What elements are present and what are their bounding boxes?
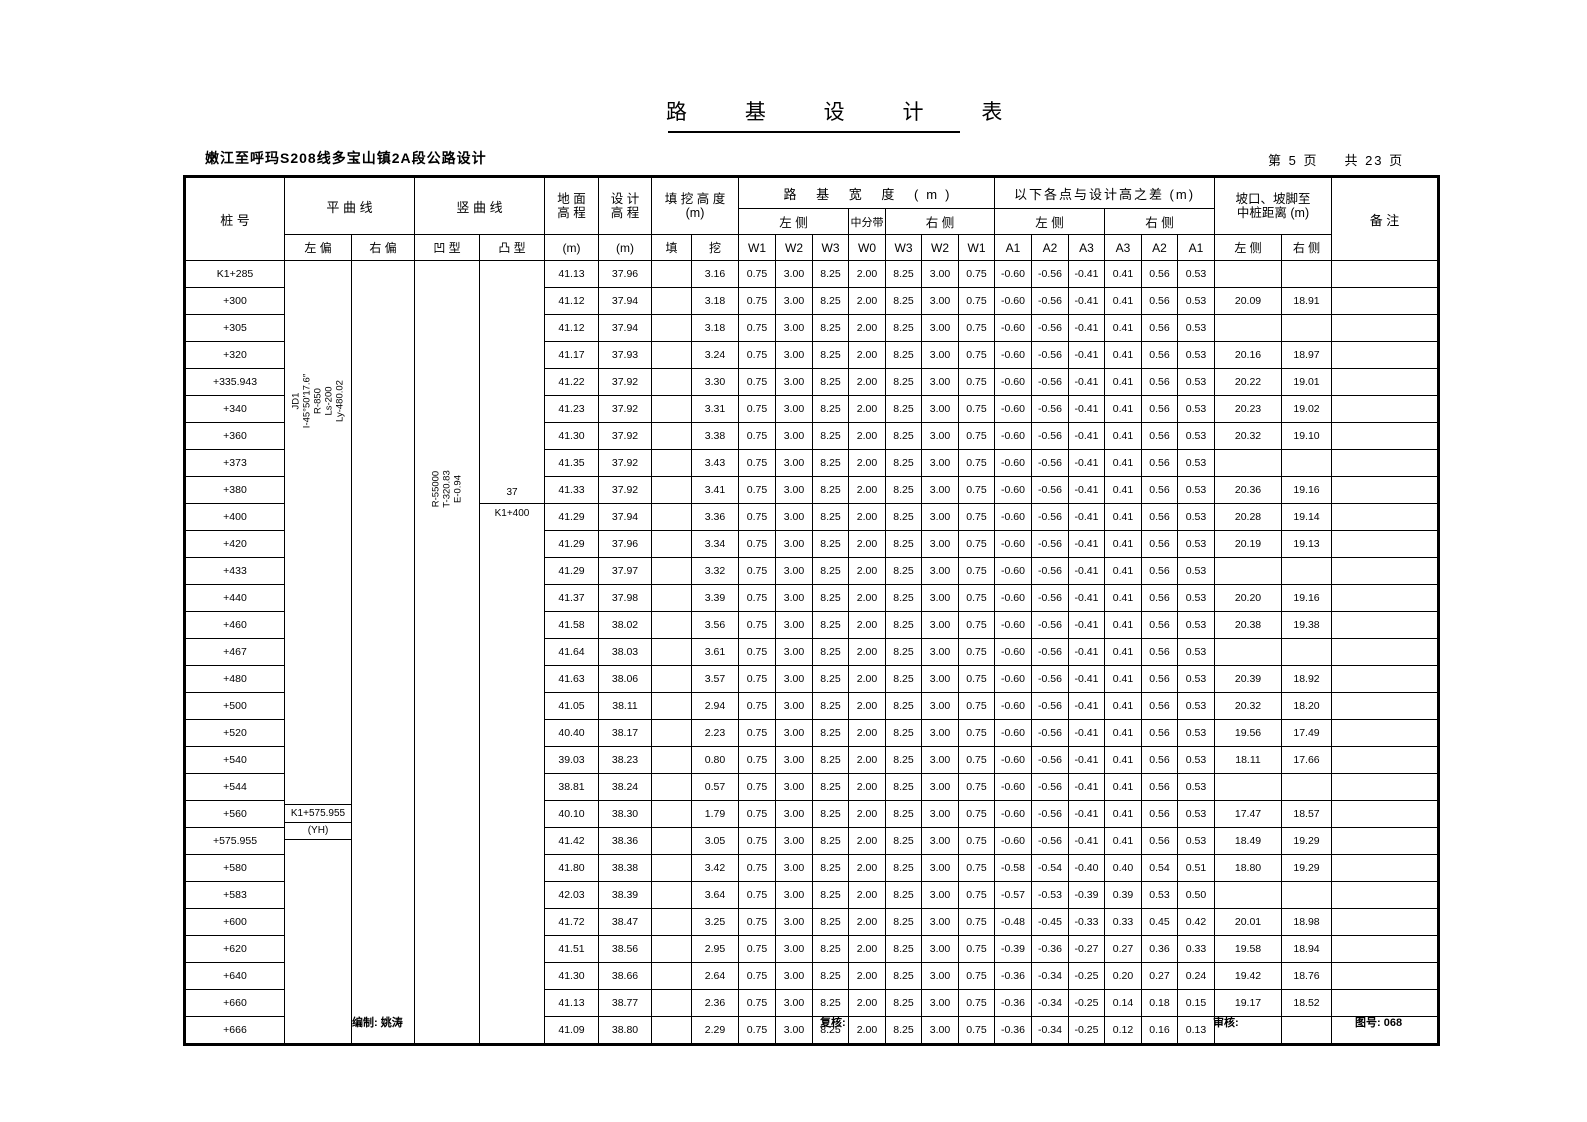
slope-right-cell: 18.94 xyxy=(1282,936,1332,963)
a2-right-cell: 0.56 xyxy=(1142,423,1178,450)
w1-left-cell: 0.75 xyxy=(739,801,776,828)
w1-left-cell: 0.75 xyxy=(739,963,776,990)
slope-left-cell: 20.22 xyxy=(1215,369,1282,396)
slope-left-cell: 20.09 xyxy=(1215,288,1282,315)
a1-left-cell: -0.60 xyxy=(995,774,1032,801)
remark-cell xyxy=(1332,639,1439,666)
a3-right-cell: 0.41 xyxy=(1105,342,1142,369)
a3-left-cell: -0.41 xyxy=(1069,693,1105,720)
w0-cell: 2.00 xyxy=(849,909,886,936)
a1-right-cell: 0.42 xyxy=(1178,909,1215,936)
ground-elevation-cell: 41.42 xyxy=(545,828,599,855)
cut-cell: 3.36 xyxy=(692,504,739,531)
w2-right: W2 xyxy=(922,235,959,261)
w1-right-cell: 0.75 xyxy=(959,990,995,1017)
w3-left-cell: 8.25 xyxy=(813,828,849,855)
w1-right-cell: 0.75 xyxy=(959,531,995,558)
a3-right-cell: 0.39 xyxy=(1105,882,1142,909)
a1-left-cell: -0.60 xyxy=(995,666,1032,693)
col-remark: 备 注 xyxy=(1332,177,1439,261)
slope-left-cell: 18.11 xyxy=(1215,747,1282,774)
w0-cell: 2.00 xyxy=(849,585,886,612)
a2-left-cell: -0.56 xyxy=(1032,585,1069,612)
hcurve-right-strip xyxy=(352,261,415,1045)
w2-left-cell: 3.00 xyxy=(776,882,813,909)
stake-cell: +400 xyxy=(185,504,285,531)
slope-right-cell: 17.49 xyxy=(1282,720,1332,747)
a3-right-cell: 0.41 xyxy=(1105,531,1142,558)
ground-elevation-cell: 41.17 xyxy=(545,342,599,369)
a1-left-cell: -0.60 xyxy=(995,612,1032,639)
fill-cell xyxy=(652,369,692,396)
stake-cell: +544 xyxy=(185,774,285,801)
a3-right-cell: 0.41 xyxy=(1105,450,1142,477)
w1-right: W1 xyxy=(959,235,995,261)
fill-cell xyxy=(652,423,692,450)
fill-cell xyxy=(652,1017,692,1045)
design-elevation-cell: 38.56 xyxy=(599,936,652,963)
a1-right-cell: 0.53 xyxy=(1178,666,1215,693)
a1-right-cell: 0.53 xyxy=(1178,774,1215,801)
fill-cell xyxy=(652,693,692,720)
remark-cell xyxy=(1332,504,1439,531)
w3-left-cell: 8.25 xyxy=(813,477,849,504)
remark-cell xyxy=(1332,369,1439,396)
a1-right-cell: 0.53 xyxy=(1178,504,1215,531)
w2-right-cell: 3.00 xyxy=(922,990,959,1017)
a3-left-cell: -0.25 xyxy=(1069,990,1105,1017)
w2-right-cell: 3.00 xyxy=(922,936,959,963)
slope-left-cell: 20.32 xyxy=(1215,693,1282,720)
design-elevation-cell: 38.02 xyxy=(599,612,652,639)
cut-cell: 3.61 xyxy=(692,639,739,666)
w2-left-cell: 3.00 xyxy=(776,504,813,531)
a2-left-cell: -0.56 xyxy=(1032,423,1069,450)
a1-left-cell: -0.60 xyxy=(995,639,1032,666)
a2-right-cell: 0.56 xyxy=(1142,774,1178,801)
slope-right-cell xyxy=(1282,450,1332,477)
a2-right-cell: 0.56 xyxy=(1142,801,1178,828)
w3-right-cell: 8.25 xyxy=(886,612,922,639)
a3-right-cell: 0.41 xyxy=(1105,828,1142,855)
remark-cell xyxy=(1332,720,1439,747)
title-underline xyxy=(668,131,960,133)
w3-left-cell: 8.25 xyxy=(813,504,849,531)
slope-right-cell: 19.29 xyxy=(1282,828,1332,855)
w2-right-cell: 3.00 xyxy=(922,288,959,315)
a2-left-cell: -0.56 xyxy=(1032,747,1069,774)
ground-elevation-cell: 41.35 xyxy=(545,450,599,477)
w1-left-cell: 0.75 xyxy=(739,936,776,963)
w1-left-cell: 0.75 xyxy=(739,504,776,531)
a3-right-cell: 0.41 xyxy=(1105,396,1142,423)
col-fill-cut-height: 填 挖 高 度 (m) xyxy=(652,177,739,235)
w3-right-cell: 8.25 xyxy=(886,720,922,747)
w1-right-cell: 0.75 xyxy=(959,801,995,828)
a2-left-cell: -0.56 xyxy=(1032,801,1069,828)
w2-left-cell: 3.00 xyxy=(776,855,813,882)
design-elevation-cell: 38.66 xyxy=(599,963,652,990)
remark-cell xyxy=(1332,774,1439,801)
w2-left-cell: 3.00 xyxy=(776,666,813,693)
w2-left-cell: 3.00 xyxy=(776,261,813,288)
design-unit: (m) xyxy=(599,235,652,261)
ground-elevation-cell: 41.29 xyxy=(545,558,599,585)
fill-cell xyxy=(652,828,692,855)
w2-right-cell: 3.00 xyxy=(922,477,959,504)
w1-right-cell: 0.75 xyxy=(959,342,995,369)
a2-right-cell: 0.56 xyxy=(1142,342,1178,369)
ground-elevation-cell: 41.13 xyxy=(545,261,599,288)
slope-right-cell xyxy=(1282,882,1332,909)
slope-right-cell: 19.14 xyxy=(1282,504,1332,531)
w2-left-cell: 3.00 xyxy=(776,585,813,612)
w0-cell: 2.00 xyxy=(849,1017,886,1045)
fill-cell xyxy=(652,801,692,828)
stake-cell: K1+285 xyxy=(185,261,285,288)
w2-right-cell: 3.00 xyxy=(922,423,959,450)
w1-right-cell: 0.75 xyxy=(959,450,995,477)
w2-right-cell: 3.00 xyxy=(922,558,959,585)
w3-left-cell: 8.25 xyxy=(813,747,849,774)
remark-cell xyxy=(1332,315,1439,342)
ground-elevation-cell: 41.23 xyxy=(545,396,599,423)
w1-left-cell: 0.75 xyxy=(739,531,776,558)
cut-cell: 3.56 xyxy=(692,612,739,639)
stake-cell: +500 xyxy=(185,693,285,720)
cut-cell: 3.39 xyxy=(692,585,739,612)
a2-left-cell: -0.56 xyxy=(1032,369,1069,396)
remark-cell xyxy=(1332,261,1439,288)
a1-left-cell: -0.36 xyxy=(995,1017,1032,1045)
a2-left-cell: -0.56 xyxy=(1032,315,1069,342)
w1-left-cell: 0.75 xyxy=(739,477,776,504)
vcurve-convex-strip: 37 K1+400 xyxy=(480,261,545,1045)
slope-right-cell xyxy=(1282,558,1332,585)
a3-right-cell: 0.41 xyxy=(1105,612,1142,639)
a1-left-cell: -0.58 xyxy=(995,855,1032,882)
a2-left-cell: -0.56 xyxy=(1032,531,1069,558)
design-elevation-cell: 38.03 xyxy=(599,639,652,666)
ground-elevation-cell: 41.30 xyxy=(545,423,599,450)
design-elevation-cell: 37.94 xyxy=(599,315,652,342)
cut-cell: 3.25 xyxy=(692,909,739,936)
fill-cell xyxy=(652,504,692,531)
w3-right-cell: 8.25 xyxy=(886,423,922,450)
w0-cell: 2.00 xyxy=(849,288,886,315)
page-title: 路 基 设 计 表 xyxy=(640,96,990,126)
w1-left-cell: 0.75 xyxy=(739,828,776,855)
w3-right-cell: 8.25 xyxy=(886,855,922,882)
a2-left-cell: -0.56 xyxy=(1032,693,1069,720)
a3-right-cell: 0.40 xyxy=(1105,855,1142,882)
w3-right-cell: 8.25 xyxy=(886,531,922,558)
a2-left-cell: -0.56 xyxy=(1032,342,1069,369)
w0-cell: 2.00 xyxy=(849,396,886,423)
a2-left-cell: -0.36 xyxy=(1032,936,1069,963)
col-stake: 桩 号 xyxy=(185,177,285,261)
a1-left-cell: -0.39 xyxy=(995,936,1032,963)
table-header: 桩 号 平 曲 线 竖 曲 线 地 面 高 程 设 计 高 程 填 挖 高 度 … xyxy=(185,177,1439,261)
design-elevation-cell: 37.92 xyxy=(599,369,652,396)
a2-right: A2 xyxy=(1142,235,1178,261)
w3-right-cell: 8.25 xyxy=(886,369,922,396)
ground-elevation-cell: 41.12 xyxy=(545,288,599,315)
cut-cell: 2.64 xyxy=(692,963,739,990)
w2-right-cell: 3.00 xyxy=(922,855,959,882)
a2-right-cell: 0.56 xyxy=(1142,693,1178,720)
a2-right-cell: 0.56 xyxy=(1142,396,1178,423)
a3-left-cell: -0.25 xyxy=(1069,963,1105,990)
slope-left-cell: 20.28 xyxy=(1215,504,1282,531)
a3-left-cell: -0.41 xyxy=(1069,369,1105,396)
ground-elevation-cell: 40.10 xyxy=(545,801,599,828)
a2-right-cell: 0.36 xyxy=(1142,936,1178,963)
stake-cell: +575.955 xyxy=(185,828,285,855)
w3-left-cell: 8.25 xyxy=(813,801,849,828)
w1-left-cell: 0.75 xyxy=(739,369,776,396)
a3-left-cell: -0.41 xyxy=(1069,477,1105,504)
w1-right-cell: 0.75 xyxy=(959,882,995,909)
design-elevation-cell: 38.77 xyxy=(599,990,652,1017)
w2-left-cell: 3.00 xyxy=(776,747,813,774)
design-elevation-cell: 37.92 xyxy=(599,423,652,450)
w0-cell: 2.00 xyxy=(849,639,886,666)
slope-left-cell: 19.17 xyxy=(1215,990,1282,1017)
stake-cell: +660 xyxy=(185,990,285,1017)
stake-cell: +420 xyxy=(185,531,285,558)
a2-left-cell: -0.56 xyxy=(1032,639,1069,666)
a1-left-cell: -0.60 xyxy=(995,315,1032,342)
a2-right-cell: 0.56 xyxy=(1142,450,1178,477)
w3-left-cell: 8.25 xyxy=(813,558,849,585)
a1-right-cell: 0.24 xyxy=(1178,963,1215,990)
w3-left-cell: 8.25 xyxy=(813,720,849,747)
w1-left-cell: 0.75 xyxy=(739,720,776,747)
a1-right-cell: 0.53 xyxy=(1178,801,1215,828)
a2-left-cell: -0.34 xyxy=(1032,1017,1069,1045)
remark-cell xyxy=(1332,990,1439,1017)
stake-cell: +460 xyxy=(185,612,285,639)
a2-left-cell: -0.56 xyxy=(1032,666,1069,693)
a1-right-cell: 0.53 xyxy=(1178,450,1215,477)
w3-right-cell: 8.25 xyxy=(886,342,922,369)
w2-left-cell: 3.00 xyxy=(776,990,813,1017)
a2-right-cell: 0.56 xyxy=(1142,828,1178,855)
w1-right-cell: 0.75 xyxy=(959,774,995,801)
slope-left-label: 左 侧 xyxy=(1215,235,1282,261)
a3-left-cell: -0.41 xyxy=(1069,315,1105,342)
cut-cell: 2.95 xyxy=(692,936,739,963)
w1-left-cell: 0.75 xyxy=(739,342,776,369)
fill-cell xyxy=(652,882,692,909)
a1-right-cell: 0.53 xyxy=(1178,639,1215,666)
w0-cell: 2.00 xyxy=(849,315,886,342)
remark-cell xyxy=(1332,936,1439,963)
slope-left-cell xyxy=(1215,882,1282,909)
w2-right-cell: 3.00 xyxy=(922,909,959,936)
w1-right-cell: 0.75 xyxy=(959,747,995,774)
a2-right-cell: 0.53 xyxy=(1142,882,1178,909)
a2-left-cell: -0.56 xyxy=(1032,450,1069,477)
w3-right-cell: 8.25 xyxy=(886,504,922,531)
w2-left-cell: 3.00 xyxy=(776,936,813,963)
cut-cell: 3.24 xyxy=(692,342,739,369)
col-roadbed-width: 路 基 宽 度 (m) xyxy=(739,177,995,209)
horizontal-curve-note: JD1 I-45°50′17.6″ R-850 Ls-200 Ly-480.02 xyxy=(291,374,346,428)
slope-left-cell xyxy=(1215,315,1282,342)
remark-cell xyxy=(1332,342,1439,369)
ground-elevation-cell: 38.81 xyxy=(545,774,599,801)
a1-left-cell: -0.60 xyxy=(995,261,1032,288)
w3-left-cell: 8.25 xyxy=(813,612,849,639)
w1-left-cell: 0.75 xyxy=(739,1017,776,1045)
fill-cell xyxy=(652,531,692,558)
a2-left-cell: -0.45 xyxy=(1032,909,1069,936)
fill-cell xyxy=(652,558,692,585)
a2-right-cell: 0.56 xyxy=(1142,261,1178,288)
w1-right-cell: 0.75 xyxy=(959,639,995,666)
w0-cell: 2.00 xyxy=(849,747,886,774)
w1-right-cell: 0.75 xyxy=(959,423,995,450)
fill-cell xyxy=(652,720,692,747)
w2-right-cell: 3.00 xyxy=(922,612,959,639)
a1-left-cell: -0.60 xyxy=(995,423,1032,450)
slope-left-cell: 20.16 xyxy=(1215,342,1282,369)
w3-left-cell: 8.25 xyxy=(813,261,849,288)
w1-left-cell: 0.75 xyxy=(739,990,776,1017)
w0-cell: 2.00 xyxy=(849,261,886,288)
a3-left-cell: -0.25 xyxy=(1069,1017,1105,1045)
slope-right-cell: 18.57 xyxy=(1282,801,1332,828)
a2-right-cell: 0.56 xyxy=(1142,477,1178,504)
w1-left-cell: 0.75 xyxy=(739,288,776,315)
w1-right-cell: 0.75 xyxy=(959,558,995,585)
slope-left-cell: 20.01 xyxy=(1215,909,1282,936)
drawing-sheet: 路 基 设 计 表 嫩江至呼玛S208线多宝山镇2A段公路设计 第 5 页共 2… xyxy=(0,0,1587,1122)
w0-cell: 2.00 xyxy=(849,342,886,369)
w2-right-cell: 3.00 xyxy=(922,801,959,828)
w2-right-cell: 3.00 xyxy=(922,450,959,477)
a1-left-cell: -0.60 xyxy=(995,369,1032,396)
slope-left-cell: 20.23 xyxy=(1215,396,1282,423)
slope-right-cell: 18.92 xyxy=(1282,666,1332,693)
remark-cell xyxy=(1332,828,1439,855)
a3-right-cell: 0.41 xyxy=(1105,369,1142,396)
stake-cell: +305 xyxy=(185,315,285,342)
a2-left-cell: -0.56 xyxy=(1032,288,1069,315)
a2-right-cell: 0.45 xyxy=(1142,909,1178,936)
stake-cell: +640 xyxy=(185,963,285,990)
w3-right-cell: 8.25 xyxy=(886,882,922,909)
cut-cell: 3.42 xyxy=(692,855,739,882)
w2-right-cell: 3.00 xyxy=(922,963,959,990)
w1-right-cell: 0.75 xyxy=(959,315,995,342)
fill-cell xyxy=(652,747,692,774)
a1-left-cell: -0.36 xyxy=(995,990,1032,1017)
fill-cell xyxy=(652,612,692,639)
cut-label: 挖 xyxy=(692,235,739,261)
w3-right-cell: 8.25 xyxy=(886,558,922,585)
a2-left-cell: -0.56 xyxy=(1032,612,1069,639)
a1-right-cell: 0.53 xyxy=(1178,315,1215,342)
w3-right-cell: 8.25 xyxy=(886,1017,922,1045)
fill-cell xyxy=(652,450,692,477)
a1-right-cell: 0.53 xyxy=(1178,531,1215,558)
ground-elevation-cell: 41.09 xyxy=(545,1017,599,1045)
slope-left-cell: 19.42 xyxy=(1215,963,1282,990)
a3-left-cell: -0.41 xyxy=(1069,720,1105,747)
stake-cell: +560 xyxy=(185,801,285,828)
diff-right-side: 右 侧 xyxy=(1105,209,1215,235)
w3-left-cell: 8.25 xyxy=(813,369,849,396)
a3-right-cell: 0.41 xyxy=(1105,720,1142,747)
a1-right-cell: 0.53 xyxy=(1178,828,1215,855)
w2-right-cell: 3.00 xyxy=(922,882,959,909)
yh-point-marker: K1+575.955 (YH) xyxy=(285,804,351,840)
a3-right-cell: 0.20 xyxy=(1105,963,1142,990)
col-slope-distance: 坡口、坡脚至 中桩距离 (m) xyxy=(1215,177,1332,235)
a1-left-cell: -0.60 xyxy=(995,828,1032,855)
w3-left-cell: 8.25 xyxy=(813,774,849,801)
a3-right-cell: 0.41 xyxy=(1105,261,1142,288)
a2-right-cell: 0.56 xyxy=(1142,369,1178,396)
w3-right-cell: 8.25 xyxy=(886,261,922,288)
a1-right-cell: 0.53 xyxy=(1178,585,1215,612)
footer-checked-by: 复核: xyxy=(820,1014,846,1030)
w2-left-cell: 3.00 xyxy=(776,963,813,990)
w2-right-cell: 3.00 xyxy=(922,693,959,720)
fill-cell xyxy=(652,855,692,882)
fill-cell xyxy=(652,585,692,612)
a3-left: A3 xyxy=(1069,235,1105,261)
a1-left-cell: -0.48 xyxy=(995,909,1032,936)
fill-cell xyxy=(652,963,692,990)
a1-right-cell: 0.53 xyxy=(1178,369,1215,396)
a3-right-cell: 0.14 xyxy=(1105,990,1142,1017)
design-elevation-cell: 38.36 xyxy=(599,828,652,855)
a1-left: A1 xyxy=(995,235,1032,261)
page-number: 第 5 页 xyxy=(1268,153,1318,168)
a1-left-cell: -0.60 xyxy=(995,585,1032,612)
w1-right-cell: 0.75 xyxy=(959,288,995,315)
cut-cell: 2.94 xyxy=(692,693,739,720)
slope-right-cell: 19.16 xyxy=(1282,477,1332,504)
w3-right-cell: 8.25 xyxy=(886,396,922,423)
width-left-side: 左 侧 xyxy=(739,209,849,235)
a3-right-cell: 0.41 xyxy=(1105,288,1142,315)
a1-right-cell: 0.53 xyxy=(1178,423,1215,450)
slope-right-cell xyxy=(1282,1017,1332,1045)
remark-cell xyxy=(1332,909,1439,936)
fill-cell xyxy=(652,774,692,801)
a2-left-cell: -0.56 xyxy=(1032,396,1069,423)
cut-cell: 3.18 xyxy=(692,315,739,342)
a2-right-cell: 0.56 xyxy=(1142,720,1178,747)
remark-cell xyxy=(1332,855,1439,882)
a1-left-cell: -0.60 xyxy=(995,801,1032,828)
width-right-side: 右 侧 xyxy=(886,209,995,235)
a2-right-cell: 0.56 xyxy=(1142,558,1178,585)
stake-cell: +540 xyxy=(185,747,285,774)
stake-cell: +480 xyxy=(185,666,285,693)
a2-right-cell: 0.18 xyxy=(1142,990,1178,1017)
w1-right-cell: 0.75 xyxy=(959,720,995,747)
remark-cell xyxy=(1332,531,1439,558)
w3-right-cell: 8.25 xyxy=(886,315,922,342)
cut-cell: 3.30 xyxy=(692,369,739,396)
a3-right: A3 xyxy=(1105,235,1142,261)
